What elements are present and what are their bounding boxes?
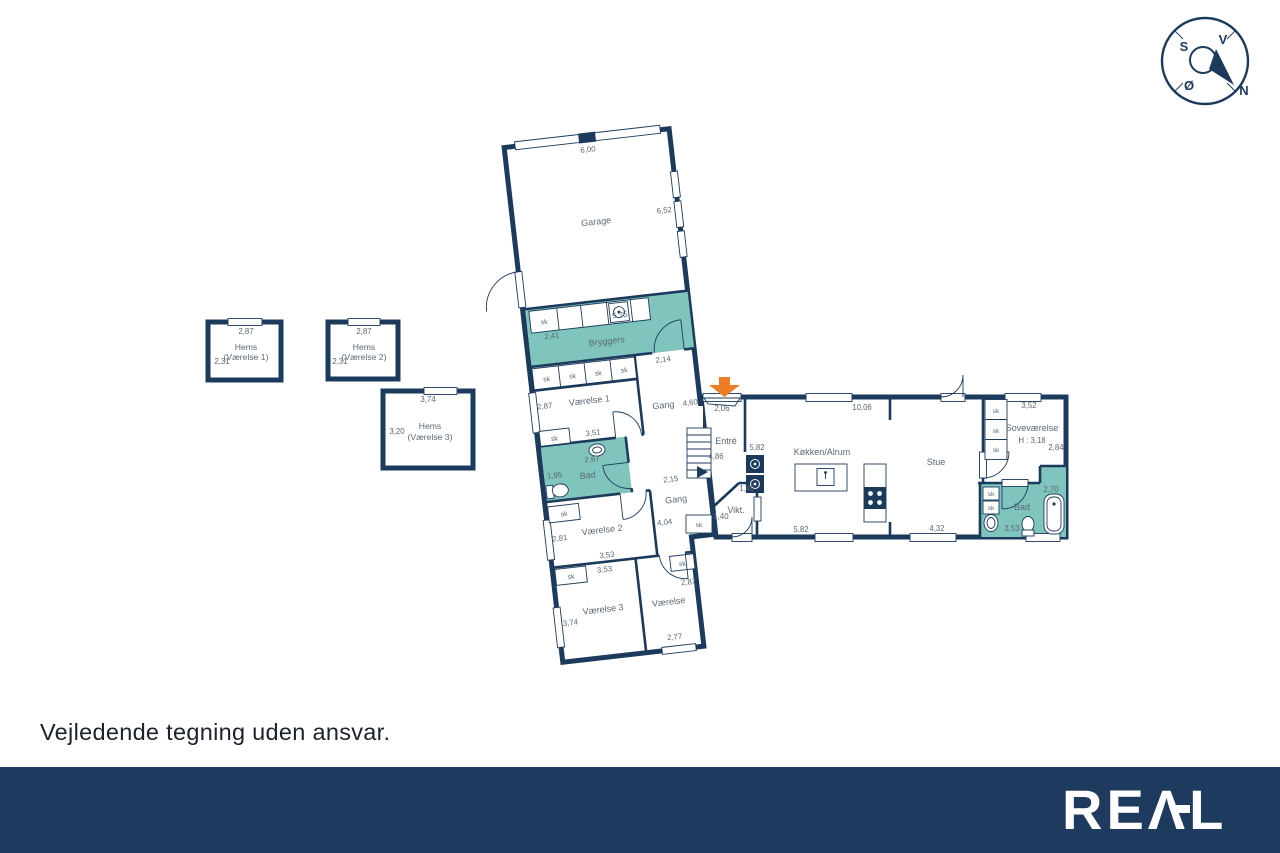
sk-label: sk — [696, 522, 703, 529]
bad2-width-dim: 3,53 — [1004, 524, 1019, 533]
hems2-subtitle: (Værelse 2) — [342, 352, 387, 362]
stue-width-dim: 4,32 — [929, 524, 944, 533]
vaerelse2-label: Værelse 2 — [581, 523, 623, 538]
compass-n: N — [1239, 83, 1248, 98]
entre-door-dim: 2,06 — [714, 404, 729, 413]
sk-label: sk — [988, 505, 995, 512]
window — [529, 393, 540, 434]
bad1-width-dim: 2,67 — [584, 454, 600, 465]
wood-stove-icon — [746, 455, 764, 473]
real-logo: REΛL — [1062, 779, 1242, 841]
hems2-width-dim: 2,87 — [356, 327, 371, 336]
bad1-height-dim: 1,95 — [547, 470, 564, 481]
compass-s: S — [1180, 39, 1189, 54]
left-wing: 6,00 Garage 6,52 sk 5,75 2,41 Bryggers s… — [468, 123, 732, 670]
window — [662, 644, 697, 655]
sovevaerelse-label: Soveværelse — [1006, 423, 1059, 433]
compass-rose-icon: S V Ø N — [1162, 18, 1249, 104]
window — [670, 171, 680, 198]
koekken-bottom-dim: 5,82 — [793, 525, 808, 534]
entre-stairs-dim: 4,86 — [708, 452, 723, 461]
vaerelse4-width-dim: 2,77 — [667, 632, 683, 643]
entre-height-dim: 5,82 — [749, 443, 764, 452]
sk-label: sk — [993, 447, 1000, 454]
vikt-dim-1: 1,40 — [739, 484, 755, 493]
window — [806, 394, 852, 402]
real-logo-crossbar — [1175, 805, 1190, 813]
hems1-width-dim: 2,87 — [238, 327, 253, 336]
vaerelse1-height-dim: 2,87 — [537, 401, 553, 412]
right-wing: 2,06 10,06 Entré 4,86 5,82 Køkken/Alrum … — [686, 375, 1066, 542]
hems2-title: Hems — [353, 342, 375, 352]
sovevaerelse-note: H : 3,18 — [1018, 436, 1045, 445]
vaerelse4-height-dim: 2,87 — [680, 577, 696, 588]
garage-side-door — [515, 271, 526, 308]
gang1-top-dim: 2,14 — [655, 354, 672, 365]
gang2-len-dim: 4,04 — [657, 517, 674, 528]
hems1-subtitle: (Værelse 1) — [224, 352, 269, 362]
hems3-depth-dim: 3,20 — [389, 427, 405, 436]
sk-label: sk — [993, 408, 1000, 415]
disclaimer-text: Vejledende tegning uden ansvar. — [40, 719, 390, 746]
vaerelse1-width-dim: 3,51 — [585, 427, 601, 438]
hems3-title: Hems — [419, 421, 441, 431]
koekken-top-dim: 10,06 — [852, 403, 872, 412]
stove-icon — [864, 487, 886, 509]
gang2-top-dim: 2,15 — [663, 474, 680, 485]
bryggers-width-dim: 5,75 — [612, 310, 629, 321]
hems-box-3: 3,74 Hems (Værelse 3) 3,20 — [383, 388, 473, 469]
hems1-depth-dim: 2,31 — [214, 357, 229, 366]
vikt-label: Vikt. — [727, 505, 744, 515]
window — [910, 534, 956, 542]
floorplan-drawing: S V Ø N 2,87 Hems (Værelse 1) 2,31 2,87 … — [0, 0, 1280, 760]
floorplan-page: { "page": { "disclaimer": "Vejledende te… — [0, 0, 1280, 853]
garage-width-dim: 6,00 — [580, 144, 597, 155]
vaerelse4-label: Værelse — [651, 595, 685, 609]
kitchen-island — [795, 464, 847, 491]
hems-box-2: 2,87 Hems (Værelse 2) 2,31 — [328, 319, 398, 380]
sovevaerelse-width-dim: 3,52 — [1021, 401, 1036, 410]
sk-label: sk — [988, 491, 995, 498]
bad2-height-dim: 2,70 — [1043, 485, 1059, 494]
compass-v: V — [1219, 32, 1228, 47]
hems3-width-dim: 3,74 — [420, 395, 436, 404]
bad2-label: Bad — [1014, 502, 1030, 512]
hems2-depth-dim: 2,31 — [332, 357, 347, 366]
sovevaerelse-height-dim: 2,84 — [1048, 443, 1064, 452]
bad1-label: Bad — [579, 469, 596, 481]
vaerelse2-height-dim: 2,81 — [552, 533, 568, 544]
terrace-door — [941, 394, 965, 402]
entre-label: Entré — [715, 436, 737, 446]
gang2-label: Gang — [665, 493, 688, 505]
bryggers-left-dim: 2,41 — [544, 331, 560, 342]
bathtub-icon — [1044, 494, 1064, 534]
vaerelse3-top-dim: 3,53 — [597, 564, 613, 575]
gang1-label: Gang — [652, 399, 675, 411]
toilet-icon — [1022, 517, 1034, 537]
stairs-icon — [687, 428, 711, 478]
window — [754, 497, 761, 521]
sk-label: sk — [993, 428, 1000, 435]
vaerelse3-height-dim: 3,74 — [562, 617, 579, 628]
real-logo-text: REΛL — [1062, 779, 1227, 841]
hems3-subtitle: (Værelse 3) — [408, 432, 453, 442]
compass-oe: Ø — [1184, 78, 1194, 93]
hems-box-1: 2,87 Hems (Værelse 1) 2,31 — [208, 319, 281, 381]
hems1-title: Hems — [235, 342, 257, 352]
garage-label: Garage — [581, 215, 612, 228]
koekken-label: Køkken/Alrum — [794, 447, 851, 457]
window — [677, 231, 687, 258]
stue-label: Stue — [927, 457, 946, 467]
vaerelse3-label: Værelse 3 — [582, 602, 624, 617]
window — [815, 534, 853, 542]
vaerelse2-width-dim: 3,53 — [599, 550, 615, 561]
sink-icon — [817, 469, 834, 486]
footer-bar: REΛL — [0, 767, 1280, 853]
window — [674, 201, 684, 228]
vaerelse1-label: Værelse 1 — [568, 393, 610, 408]
sink-icon — [984, 515, 998, 532]
garage-height-dim: 6,52 — [656, 205, 672, 216]
